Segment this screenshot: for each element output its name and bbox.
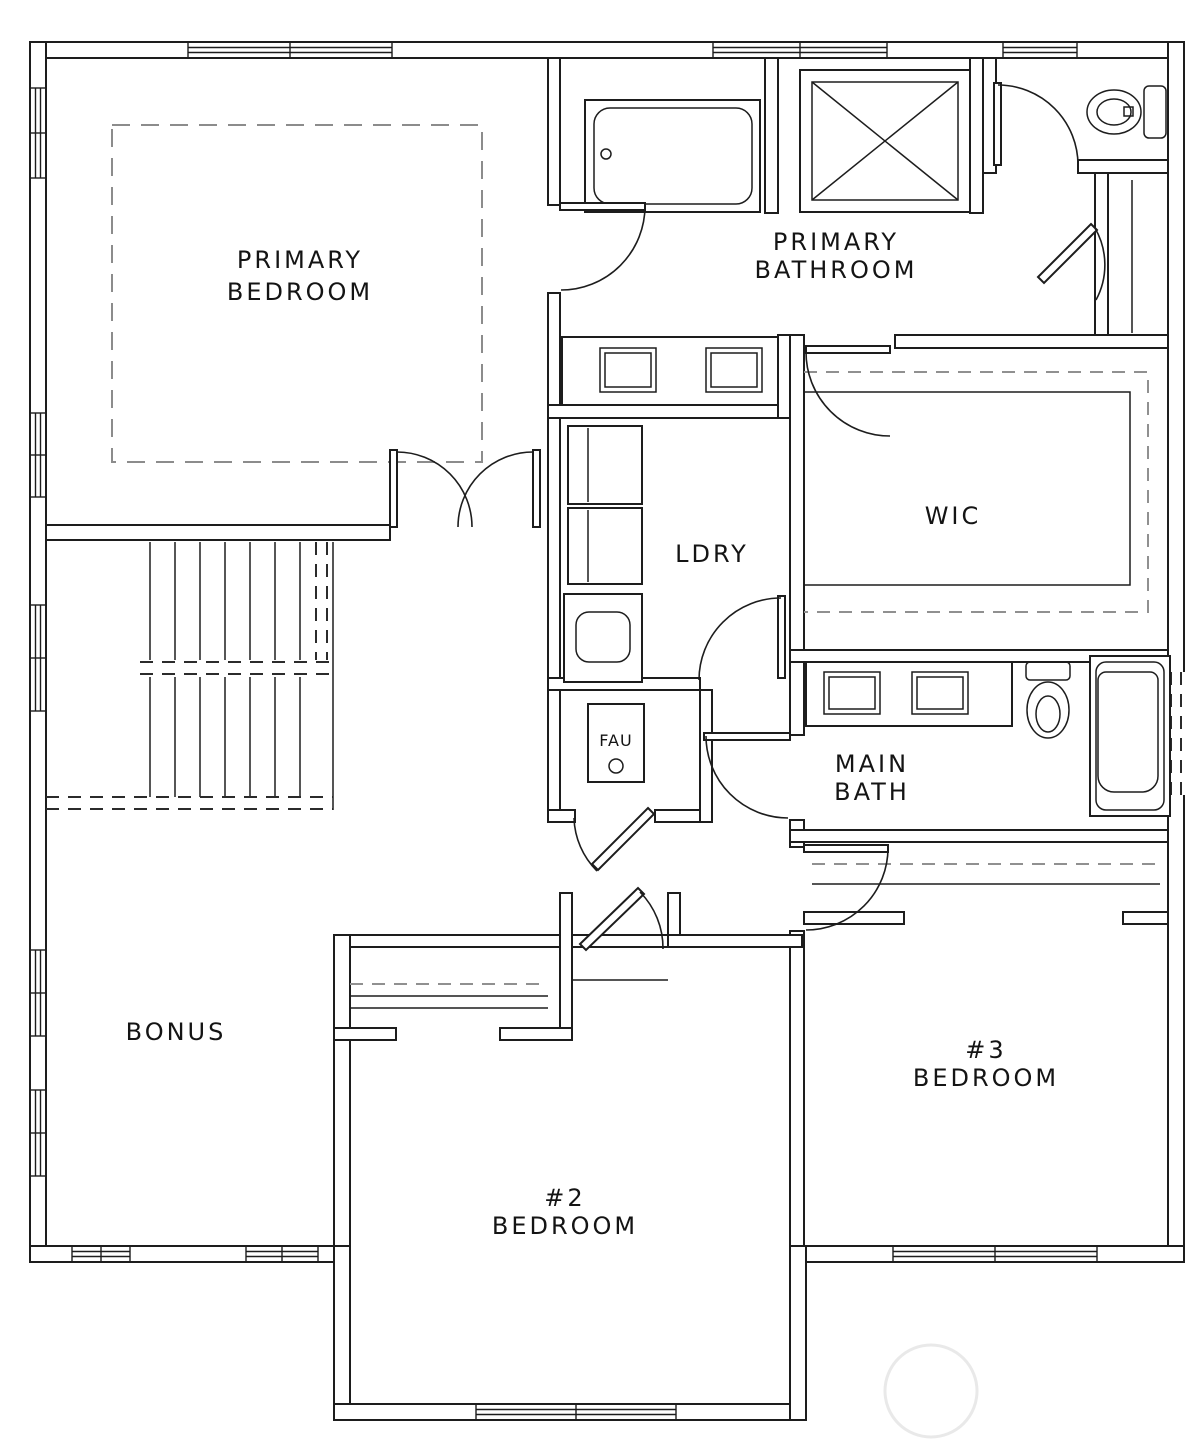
wall-wc-bottom (1078, 160, 1168, 173)
door-wc (994, 83, 1078, 165)
double-door-bed1 (390, 450, 540, 527)
wall-vanity-bottom (548, 405, 790, 418)
fixtures (562, 70, 1170, 816)
wic-closet-rod-dashed (804, 372, 1148, 612)
wall-exterior-top (30, 42, 1184, 58)
room-label-main-bath: MAIN BATH (834, 750, 910, 806)
wall-exterior-right (1168, 42, 1184, 1262)
wall-bed2-closet-left (334, 935, 350, 1246)
room-label-line: #3 (965, 1036, 1006, 1064)
floor-plan-page: PRIMARY BEDROOM PRIMARY BATHROOM WIC LDR… (0, 0, 1201, 1439)
floor-plan-svg: PRIMARY BEDROOM PRIMARY BATHROOM WIC LDR… (0, 0, 1201, 1439)
room-label-line: BEDROOM (492, 1212, 638, 1240)
watermark-circle (885, 1345, 977, 1437)
room-label-line: MAIN (835, 750, 909, 778)
toilet-icon (1087, 86, 1166, 138)
wall-exterior-bed2-bottom (334, 1404, 806, 1420)
doors (390, 83, 1105, 950)
room-label-primary-bathroom: PRIMARY BATHROOM (755, 228, 918, 284)
door-fau (574, 808, 654, 871)
room-label-line: BEDROOM (227, 278, 373, 306)
room-label-line: FAU (599, 731, 632, 750)
wall-exterior-bed2-left (334, 1246, 350, 1420)
room-label-bed2: #2 BEDROOM (492, 1184, 638, 1240)
vanity-double-sink-icon (562, 337, 778, 405)
room-label-line: #2 (544, 1184, 585, 1212)
bathtub-main-icon (1090, 656, 1170, 816)
wall-bed2-top-right (668, 935, 802, 947)
wall-bed2-closet-front-left (334, 1028, 396, 1040)
wall-tub-shower-nib (765, 58, 778, 213)
wall-fau-right (700, 690, 712, 822)
wall-exterior-left (30, 42, 46, 1262)
room-label-line: BATH (834, 778, 910, 806)
wall-spine-upper (790, 335, 804, 735)
room-label-line: LDRY (675, 540, 749, 568)
wall-shower-wc-nib (970, 58, 983, 213)
wall-bed2-vestibule-left (560, 893, 572, 1040)
vanity-double-sink-main-icon (806, 662, 1012, 726)
wall-bed1-ldry-fau (548, 293, 560, 810)
room-label-primary-bedroom: PRIMARY BEDROOM (227, 246, 373, 306)
door-wic (806, 346, 890, 436)
room-label-wic: WIC (925, 502, 982, 530)
room-label-fau: FAU (599, 731, 632, 750)
room-label-line: PRIMARY (237, 246, 363, 274)
wall-bed2-closet-top (334, 935, 680, 947)
door-laundry (699, 596, 785, 680)
room-label-bed3: #3 BEDROOM (913, 1036, 1059, 1092)
utility-sink-icon (564, 594, 642, 682)
wall-bed1-bath-upper (548, 58, 560, 205)
wic-shelf-outline (804, 392, 1130, 585)
bathtub-icon (585, 100, 760, 212)
wall-spine-lower (790, 931, 804, 1246)
room-label-line: BEDROOM (913, 1064, 1059, 1092)
room-label-line: PRIMARY (773, 228, 899, 256)
dryer-icon (568, 508, 642, 584)
wall-bed3-closet-front-right (1123, 912, 1168, 924)
wall-bed1-bottom (46, 525, 390, 540)
wall-exterior-bonus-bottom (30, 1246, 350, 1262)
door-main-bath (704, 733, 790, 818)
toilet-main-icon (1026, 662, 1070, 738)
wall-wic-top (895, 335, 1168, 348)
door-primary-bath (560, 203, 645, 290)
room-label-line: WIC (925, 502, 982, 530)
wall-bed2-closet-front-right (500, 1028, 572, 1040)
wall-linen-left (1095, 173, 1108, 335)
shower-icon (800, 70, 970, 212)
room-label-line: BATHROOM (755, 256, 918, 284)
wall-vanity-nib (778, 335, 790, 418)
wall-mainbath-bottom (790, 830, 1168, 842)
room-label-line: BONUS (126, 1018, 227, 1046)
washer-icon (568, 426, 642, 504)
staircase (46, 542, 333, 810)
room-label-ldry: LDRY (675, 540, 749, 568)
wall-exterior-bed2-right (790, 1246, 806, 1420)
room-label-bonus: BONUS (126, 1018, 227, 1046)
wall-fau-bottom-left (548, 810, 575, 822)
